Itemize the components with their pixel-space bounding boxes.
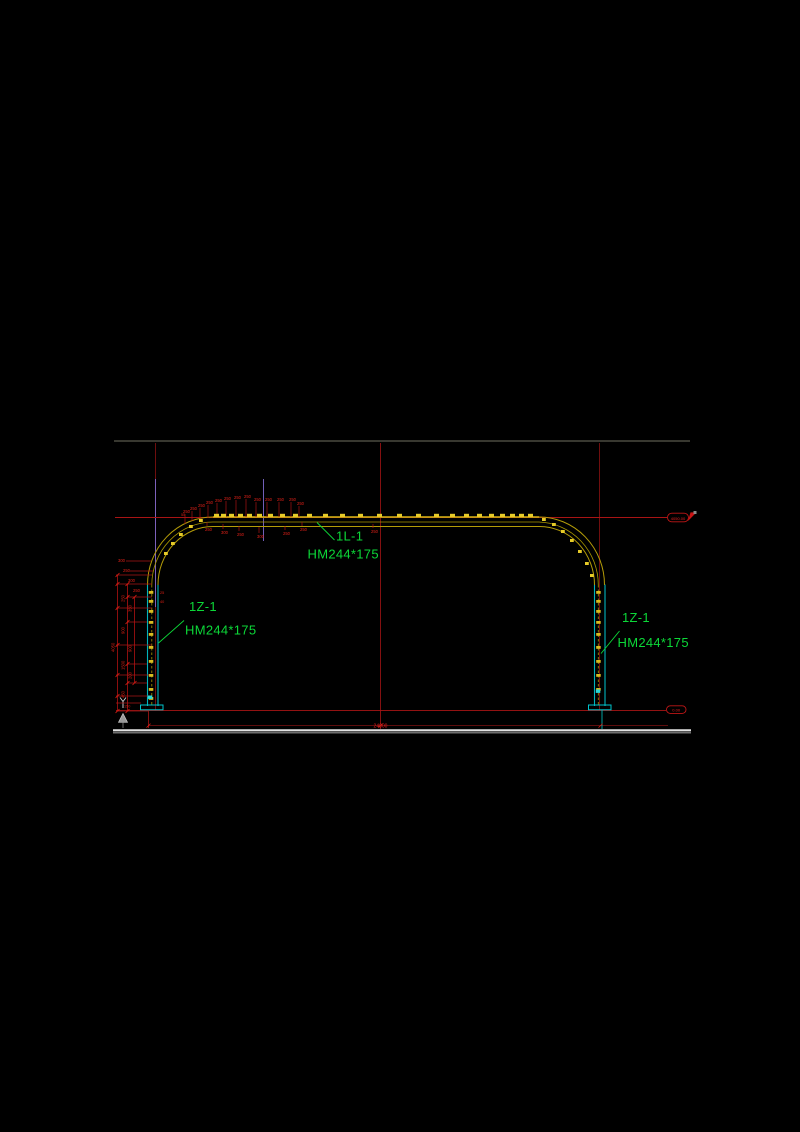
- cad-drawing-canvas[interactable]: 24000 4050.00 0.00: [0, 0, 800, 1132]
- beam-cleat: [519, 514, 524, 517]
- arc-cleat: [179, 533, 183, 536]
- beam-cleat: [477, 514, 482, 517]
- base-elevation-marker: 0.00: [667, 706, 687, 714]
- arc-cleat: [542, 518, 546, 521]
- column-rung: [596, 633, 601, 636]
- dim-chain-value: 4050: [111, 642, 116, 652]
- arc-side-flag-value: 300: [118, 558, 126, 563]
- beam-cleat: [528, 514, 533, 517]
- under-beam-flag-value: 250: [205, 527, 213, 532]
- roof-elevation-marker: 4050.00: [668, 511, 697, 522]
- dim-chain-value: 1500: [121, 660, 126, 670]
- under-beam-flag-value: 250: [283, 531, 291, 536]
- beam-size: HM244*175: [308, 547, 379, 562]
- left-column-label-leader: [159, 621, 185, 644]
- column-rung: [149, 646, 154, 649]
- arc-cleat: [171, 542, 175, 545]
- under-beam-flag-value: 250: [371, 529, 379, 534]
- roof-elevation-value: 4050.00: [671, 516, 686, 521]
- column-rung: [149, 610, 154, 613]
- under-beam-flag-value: 300: [221, 530, 229, 535]
- column-rung: [596, 674, 601, 677]
- dim-small-value: 25: [160, 591, 164, 595]
- beam-label: 1L-1 HM244*175: [308, 523, 379, 562]
- arc-cleat: [199, 519, 203, 522]
- beam-cleat: [307, 514, 312, 517]
- left-column-base-plate: [141, 705, 164, 710]
- column-rung: [149, 633, 154, 636]
- dim-chain-value: 900: [128, 644, 133, 652]
- beam-label-leader: [317, 523, 335, 541]
- beam-cleat: [229, 514, 234, 517]
- arc-cleat: [164, 552, 168, 555]
- purlin-flag-value: 250: [289, 497, 297, 502]
- purlin-flag-value: 250: [206, 500, 214, 505]
- column-rung: [596, 621, 601, 624]
- left-column-label: 1Z-1 HM244*175: [159, 599, 257, 643]
- column-rung: [596, 600, 601, 603]
- dim-chain-value: 900: [121, 626, 126, 634]
- beam-cleat: [268, 514, 273, 517]
- beam-cleat: [214, 514, 219, 517]
- beam-cleat: [323, 514, 328, 517]
- beam-tag: 1L-1: [336, 529, 363, 544]
- purlin-flag-value: 250: [198, 503, 206, 508]
- column-rung: [596, 610, 601, 613]
- arc-cleat: [561, 530, 565, 533]
- purlin-flag-value: 250: [190, 506, 198, 511]
- purlin-flag-value: 250: [215, 498, 223, 503]
- column-rung: [149, 660, 154, 663]
- datum-triangle-icon: [119, 714, 128, 723]
- column-rung: [149, 591, 154, 594]
- purlin-flag-value: 250: [297, 501, 305, 506]
- base-elevation-value: 0.00: [672, 708, 681, 713]
- under-beam-flag-value: 250: [237, 532, 245, 537]
- arc-cleat: [570, 539, 574, 542]
- column-rung: [596, 646, 601, 649]
- beam-cleat: [247, 514, 252, 517]
- beam-cleat: [397, 514, 402, 517]
- column-rung: [149, 688, 154, 691]
- beam-cleat: [450, 514, 455, 517]
- arc-side-flag-value: 250: [123, 568, 131, 573]
- span-dimension-value: 24000: [374, 724, 388, 730]
- beam-cleat: [238, 514, 243, 517]
- beam-cleat: [416, 514, 421, 517]
- dim-chain-value: 350: [128, 604, 133, 612]
- dim-small-value: 150: [124, 705, 130, 709]
- beam-cleat: [257, 514, 262, 517]
- right-column-tag: 1Z-1: [622, 610, 650, 625]
- elevation-arrow-tip: [694, 511, 697, 514]
- beam-cleat: [489, 514, 494, 517]
- purlin-flag-value: 250: [234, 495, 242, 500]
- arc-side-flag-value: 300: [128, 578, 136, 583]
- beam-cleat: [500, 514, 505, 517]
- column-rung: [596, 591, 601, 594]
- beam-cleat: [377, 514, 382, 517]
- left-column-size: HM244*175: [185, 623, 256, 638]
- column-cyan-mark: [148, 696, 153, 699]
- beam-cleat: [358, 514, 363, 517]
- right-column-size: HM244*175: [618, 635, 689, 650]
- beam-cleat: [280, 514, 285, 517]
- column-rung: [149, 600, 154, 603]
- arc-side-flag-value: 250: [133, 588, 141, 593]
- purlin-flag-value: 250: [254, 497, 262, 502]
- dim-chain-value: 450: [121, 690, 126, 698]
- beam-cleat: [510, 514, 515, 517]
- under-beam-flag-value: 300: [257, 534, 265, 539]
- beam-cleat: [464, 514, 469, 517]
- purlin-flag-value: 250: [265, 497, 273, 502]
- dim-chain-value: 200: [128, 671, 133, 679]
- left-column-tag: 1Z-1: [189, 599, 217, 614]
- beam-cleat: [221, 514, 226, 517]
- under-beam-flag-value: 250: [300, 527, 308, 532]
- arc-cleat: [189, 525, 193, 528]
- purlin-flag-value: 250: [224, 496, 232, 501]
- column-rung: [596, 660, 601, 663]
- column-rung: [149, 674, 154, 677]
- arc-cleat: [578, 550, 582, 553]
- dim-chain-value: 250: [121, 594, 126, 602]
- beam-cleat: [340, 514, 345, 517]
- purlin-flag-value: 250: [244, 494, 252, 499]
- beam-cleat: [434, 514, 439, 517]
- arc-cleat: [585, 562, 589, 565]
- dim-small-value: 40: [160, 600, 164, 604]
- beam-cleat: [293, 514, 298, 517]
- right-column-label: 1Z-1 HM244*175: [601, 610, 689, 654]
- arc-cleat: [552, 523, 556, 526]
- arc-cleat: [590, 574, 594, 577]
- purlin-flag-value: 250: [277, 497, 285, 502]
- column-cyan-mark: [596, 690, 601, 693]
- column-rung: [149, 621, 154, 624]
